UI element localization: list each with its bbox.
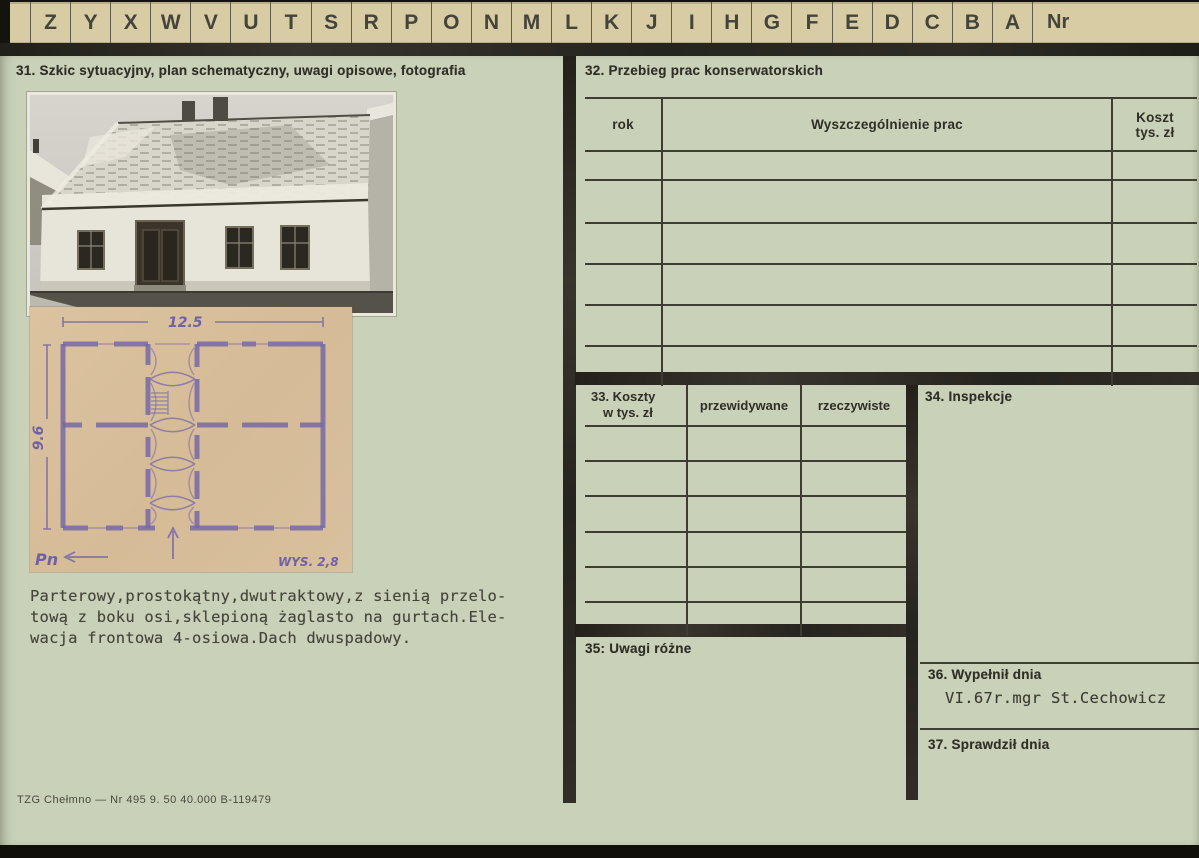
table-empty-row	[585, 427, 906, 462]
table-empty-cell	[686, 533, 802, 566]
table-empty-cell	[585, 603, 686, 636]
col-header-koszt-line2: tys. zł	[1136, 125, 1175, 140]
tab-letter-B: B	[953, 2, 993, 43]
table-empty-cell	[686, 568, 802, 601]
table-empty-cell	[1113, 152, 1197, 179]
tab-nr-cell: Nr	[1033, 2, 1199, 43]
door-leaf-left	[143, 230, 159, 281]
tab-letter-K: K	[592, 2, 632, 43]
table-empty-cell	[585, 533, 686, 566]
table-empty-cell	[1113, 224, 1197, 263]
section33-table: 33. Koszty w tys. zł przewidywane rzeczy…	[585, 385, 906, 636]
table-empty-cell	[802, 533, 906, 566]
table-empty-row	[585, 181, 1197, 224]
section33-title-line2: w tys. zł	[591, 405, 686, 421]
table-empty-cell	[1113, 306, 1197, 345]
section36-typed-value: VI.67r.mgr St.Cechowicz	[945, 689, 1167, 707]
table-empty-cell	[1113, 181, 1197, 222]
north-arrow-icon	[65, 552, 108, 562]
plan-height-label: WYS. 2,8	[278, 555, 339, 569]
door-step	[134, 285, 186, 291]
table-empty-cell	[585, 306, 661, 345]
table-empty-row	[585, 533, 906, 568]
col-header-prace: Wyszczególnienie prac	[811, 117, 963, 132]
table-empty-row	[585, 347, 1197, 386]
section31-title: 31. Szkic sytuacyjny, plan schematyczny,…	[16, 63, 466, 78]
building-photo	[27, 92, 396, 316]
table-empty-cell	[661, 181, 1113, 222]
tab-strip-letters: ZYXWVUTSRPONMLKJIHGFEDCBA	[31, 2, 1033, 43]
table-empty-cell	[585, 427, 686, 460]
section36-title: 36. Wypełnił dnia	[928, 667, 1042, 682]
tab-letter-X: X	[111, 2, 151, 43]
vault-bay-sides	[151, 348, 194, 524]
section32-table-rows	[585, 152, 1197, 386]
tab-letter-W: W	[151, 2, 191, 43]
table-empty-cell	[802, 603, 906, 636]
chimney-left	[182, 101, 195, 121]
table-empty-row	[585, 568, 906, 603]
table-empty-cell	[661, 347, 1113, 386]
col-header-przewidywane: przewidywane	[700, 398, 788, 413]
floor-plan-sketch: 12.5 9.6 Pn WYS. 2,8	[30, 307, 352, 572]
interior-walls	[63, 344, 323, 528]
table-empty-cell	[585, 265, 661, 304]
archival-card-scan: ZYXWVUTSRPONMLKJIHGFEDCBA Nr 31. Szkic s…	[0, 0, 1199, 858]
table-empty-row	[585, 152, 1197, 181]
table-empty-row	[585, 497, 906, 532]
door-leaf-right	[162, 230, 178, 281]
section32-table: rok Wyszczególnienie prac Koszt tys. zł	[585, 97, 1197, 386]
right-building-wall	[367, 109, 393, 293]
tab-letter-S: S	[312, 2, 352, 43]
table-empty-cell	[585, 224, 661, 263]
tab-strip-lead-spacer	[10, 2, 31, 43]
floor-plan-drawing: 12.5 9.6 Pn WYS. 2,8	[30, 307, 352, 572]
building-photo-image	[30, 95, 393, 313]
tab-letter-J: J	[632, 2, 672, 43]
col-header-rzeczywiste: rzeczywiste	[818, 398, 890, 413]
tab-letter-O: O	[432, 2, 472, 43]
tab-letter-R: R	[352, 2, 392, 43]
tab-letter-V: V	[191, 2, 231, 43]
print-imprint: TZG Chełmno — Nr 495 9. 50 40.000 B-1194…	[17, 794, 271, 806]
table-empty-cell	[661, 306, 1113, 345]
section36-top-line	[920, 662, 1199, 664]
tab-letter-D: D	[873, 2, 913, 43]
tab-letter-Z: Z	[31, 2, 71, 43]
tab-letter-L: L	[552, 2, 592, 43]
section37-top-line	[920, 728, 1199, 730]
plan-width-label: 12.5	[168, 315, 203, 331]
col-header-rok: rok	[612, 117, 634, 132]
window-left	[78, 231, 104, 269]
tab-letter-C: C	[913, 2, 953, 43]
section35-title: 35: Uwagi różne	[585, 641, 692, 656]
main-vertical-divider-bar	[563, 56, 576, 803]
tab-letter-A: A	[993, 2, 1033, 43]
tab-letter-I: I	[672, 2, 712, 43]
tab-letter-N: N	[472, 2, 512, 43]
table-empty-cell	[686, 603, 802, 636]
tab-letter-G: G	[752, 2, 792, 43]
top-divider-bar	[0, 43, 1199, 56]
right-vertical-divider-bar	[906, 385, 918, 800]
table-empty-row	[585, 603, 906, 636]
tab-letter-T: T	[271, 2, 311, 43]
table-empty-row	[585, 224, 1197, 265]
section32-title: 32. Przebieg prac konserwatorskich	[585, 63, 823, 78]
stair-hatch	[151, 391, 168, 415]
table-empty-cell	[686, 462, 802, 495]
section37-title: 37. Sprawdził dnia	[928, 737, 1050, 752]
table-empty-cell	[802, 497, 906, 530]
tab-letter-P: P	[392, 2, 432, 43]
tab-letter-Y: Y	[71, 2, 111, 43]
table-empty-cell	[661, 265, 1113, 304]
tab-letter-E: E	[833, 2, 873, 43]
wall-plinth	[40, 281, 370, 291]
tab-letter-U: U	[231, 2, 271, 43]
section33-title-line1: 33. Koszty	[591, 389, 686, 405]
tab-letter-F: F	[792, 2, 832, 43]
table-empty-cell	[802, 568, 906, 601]
table-empty-cell	[585, 152, 661, 179]
table-empty-cell	[802, 462, 906, 495]
outer-walls	[63, 344, 323, 528]
table-empty-cell	[1113, 347, 1197, 386]
section32-table-header: rok Wyszczególnienie prac Koszt tys. zł	[585, 99, 1197, 152]
chimney-right	[213, 97, 228, 121]
table-empty-cell	[585, 462, 686, 495]
window-far-right	[281, 226, 309, 269]
table-empty-cell	[686, 497, 802, 530]
typed-description: Parterowy,prostokątny,dwutraktowy,z sien…	[30, 586, 575, 649]
entrance-arrow-icon	[168, 528, 178, 559]
table-empty-cell	[585, 497, 686, 530]
tab-letter-M: M	[512, 2, 552, 43]
nr-label: Nr	[1047, 11, 1069, 34]
table-empty-cell	[661, 152, 1113, 179]
table-empty-row	[585, 306, 1197, 347]
table-empty-cell	[585, 181, 661, 222]
plan-north-label: Pn	[35, 550, 58, 569]
plan-depth-label: 9.6	[31, 425, 47, 450]
section33-table-header: 33. Koszty w tys. zł przewidywane rzeczy…	[585, 385, 906, 427]
table-empty-row	[585, 462, 906, 497]
table-empty-cell	[1113, 265, 1197, 304]
table-empty-cell	[585, 347, 661, 386]
table-empty-cell	[661, 224, 1113, 263]
table-empty-row	[585, 265, 1197, 306]
window-middle-right	[226, 227, 253, 268]
tab-strip: ZYXWVUTSRPONMLKJIHGFEDCBA Nr	[10, 2, 1199, 43]
section34-title: 34. Inspekcje	[925, 389, 1012, 404]
neighbour-chimney	[33, 139, 39, 153]
section33-table-rows	[585, 427, 906, 636]
table-empty-cell	[686, 427, 802, 460]
scan-bottom-edge	[0, 845, 1199, 858]
col-header-koszt-line1: Koszt	[1136, 110, 1174, 125]
table-empty-cell	[802, 427, 906, 460]
table-empty-cell	[585, 568, 686, 601]
tab-letter-H: H	[712, 2, 752, 43]
card-body: 31. Szkic sytuacyjny, plan schematyczny,…	[0, 56, 1199, 845]
